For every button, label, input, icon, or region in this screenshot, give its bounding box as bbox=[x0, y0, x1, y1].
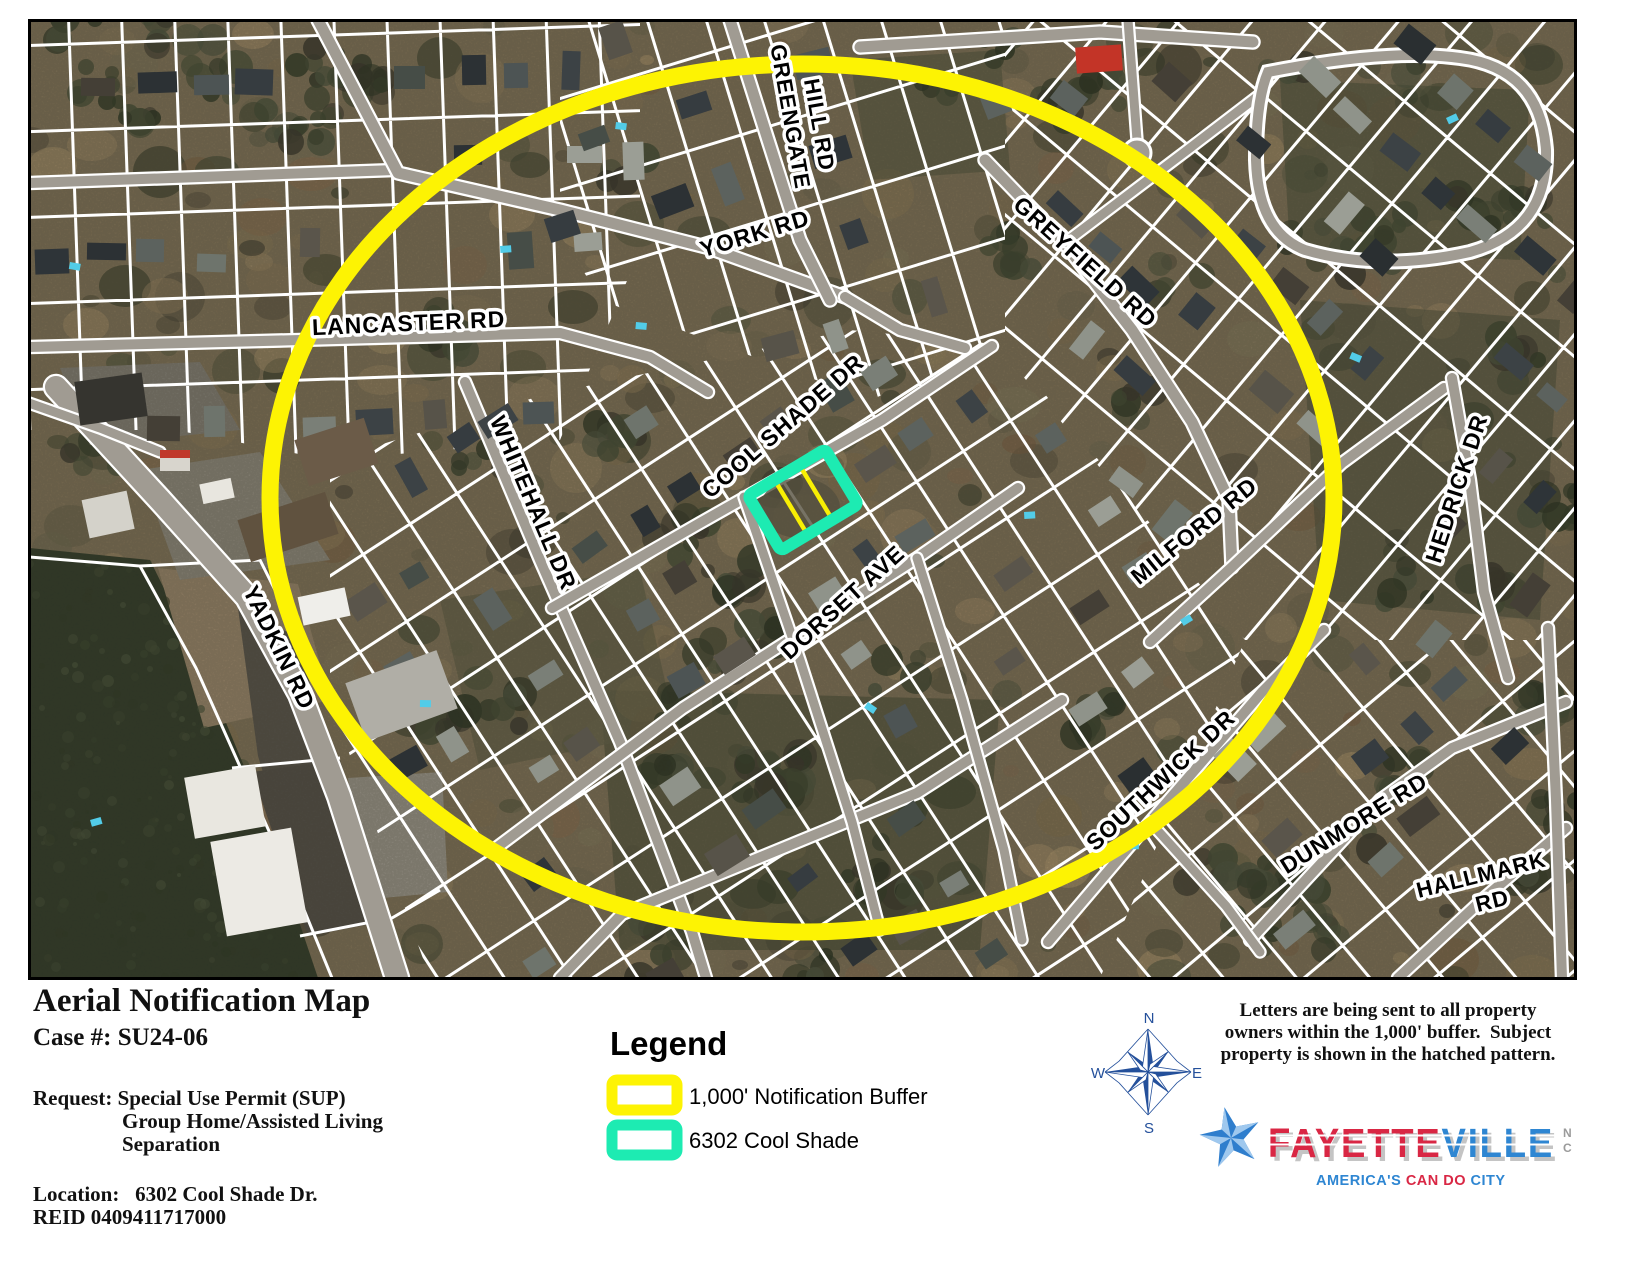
svg-text:property is shown in the hatch: property is shown in the hatched pattern… bbox=[1221, 1044, 1556, 1065]
svg-text:C: C bbox=[1563, 1141, 1572, 1155]
svg-text:W: W bbox=[1091, 1065, 1106, 1082]
svg-text:Separation: Separation bbox=[122, 1132, 220, 1156]
svg-text:Aerial Notification Map: Aerial Notification Map bbox=[33, 983, 370, 1019]
svg-text:E: E bbox=[1192, 1065, 1202, 1082]
svg-text:Letters are being sent to all: Letters are being sent to all property bbox=[1240, 1000, 1537, 1021]
svg-text:owners within the 1,000' buffe: owners within the 1,000' buffer. Subject bbox=[1225, 1022, 1552, 1043]
svg-text:N: N bbox=[1563, 1126, 1572, 1140]
svg-text:FAYETTEVILLE: FAYETTEVILLE bbox=[1268, 1120, 1554, 1166]
svg-text:Legend: Legend bbox=[610, 1025, 727, 1062]
svg-text:AMERICA'S CAN DO CITY: AMERICA'S CAN DO CITY bbox=[1316, 1173, 1506, 1189]
svg-text:Request: Special Use Permit (S: Request: Special Use Permit (SUP) bbox=[33, 1086, 346, 1110]
svg-text:REID 0409411717000: REID 0409411717000 bbox=[33, 1205, 226, 1229]
svg-text:S: S bbox=[1144, 1120, 1154, 1137]
svg-text:Location: 6302 Cool Shade Dr: Location: 6302 Cool Shade Dr. bbox=[33, 1182, 318, 1206]
svg-text:Case #: SU24-06: Case #: SU24-06 bbox=[33, 1024, 208, 1051]
svg-text:1,000' Notification Buffer: 1,000' Notification Buffer bbox=[689, 1084, 928, 1109]
svg-text:N: N bbox=[1144, 1010, 1155, 1027]
svg-text:6302 Cool Shade: 6302 Cool Shade bbox=[689, 1128, 859, 1153]
svg-text:Group Home/Assisted Living: Group Home/Assisted Living bbox=[122, 1109, 383, 1133]
